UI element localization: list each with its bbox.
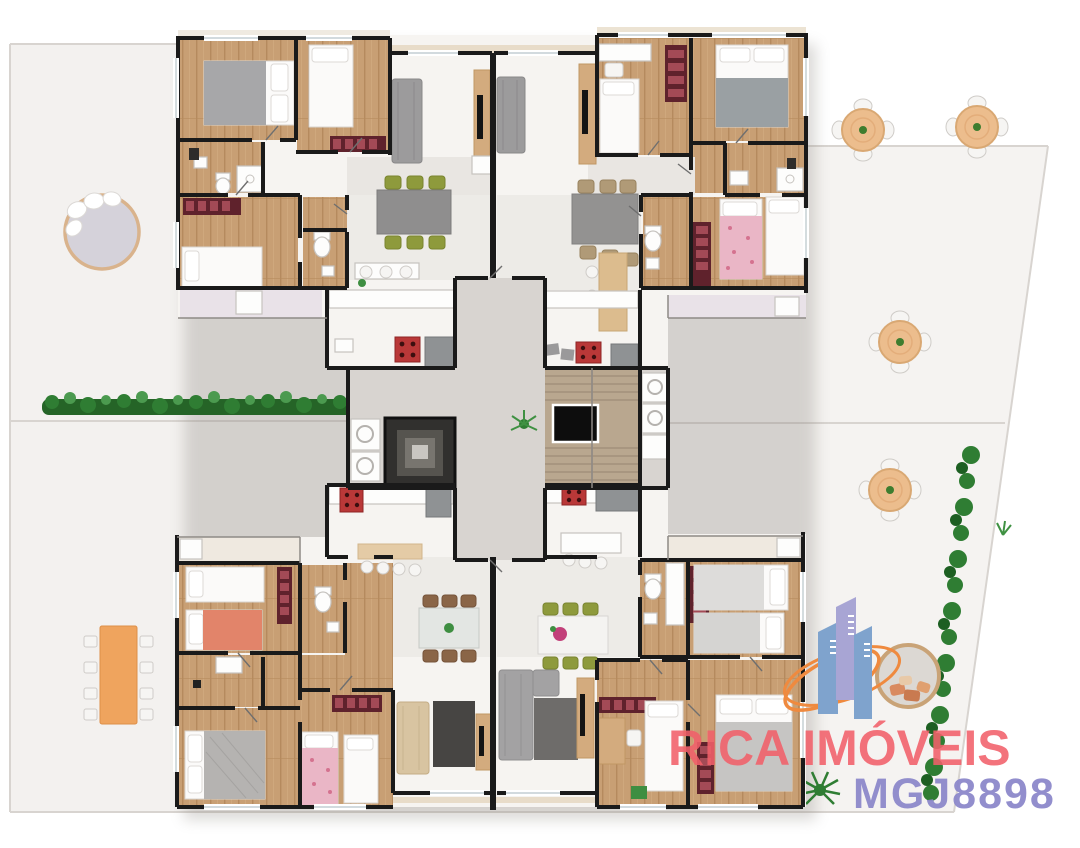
kitchen-island — [561, 533, 621, 553]
hall-item — [193, 680, 201, 688]
logo-building-icon — [854, 626, 872, 719]
table-centerpiece — [444, 623, 454, 633]
fridge — [596, 487, 640, 511]
code-text: MGJ8898 — [853, 770, 1056, 818]
tv — [582, 90, 588, 134]
cooktop — [340, 488, 363, 512]
round-wicker-chair — [877, 645, 939, 707]
floor-plan-svg: RICA IMÓVEIS MGJ8898 — [0, 0, 1080, 848]
bed-blanket — [204, 61, 266, 125]
logo-building-icon — [818, 622, 838, 714]
dining-table — [538, 616, 608, 654]
tv-stand — [577, 678, 594, 758]
plant — [631, 786, 647, 799]
logo-building-icon — [836, 597, 856, 700]
dining-table — [377, 190, 451, 234]
bed-blanket — [716, 78, 788, 127]
grass-sprout-right — [997, 521, 1011, 535]
rug — [534, 698, 578, 760]
desk — [599, 44, 651, 61]
utility-shaft-core — [412, 445, 428, 459]
terrace-washer — [775, 297, 799, 316]
brand-text: RICA IMÓVEIS — [668, 720, 1011, 776]
desk — [599, 718, 625, 764]
bed-blanket — [694, 613, 760, 653]
fridge — [426, 486, 451, 517]
sofa-beige — [397, 702, 429, 774]
tv — [479, 726, 484, 756]
sofa — [497, 77, 525, 153]
floral-blanket — [302, 748, 338, 806]
bed-blanket — [694, 565, 764, 610]
hallway-floor — [345, 563, 393, 655]
cooktop — [576, 342, 601, 363]
dining-table — [572, 194, 638, 244]
terrace-washer — [180, 539, 202, 559]
floor-plan-render: RICA IMÓVEIS MGJ8898 — [0, 0, 1080, 848]
salmon-blanket — [203, 610, 262, 650]
terrace-washer — [777, 538, 800, 557]
sofa-sectional — [499, 670, 533, 760]
cooktop — [395, 337, 420, 362]
sofa — [392, 79, 422, 163]
tv — [580, 694, 585, 736]
fridge — [425, 337, 454, 368]
corridor-bottom — [455, 488, 545, 560]
tv — [477, 95, 483, 139]
closet — [216, 657, 242, 673]
terrace-washer — [236, 291, 262, 314]
fridge — [611, 344, 638, 368]
corridor-top — [455, 278, 545, 368]
rug — [433, 701, 475, 767]
floral-blanket — [720, 216, 762, 279]
